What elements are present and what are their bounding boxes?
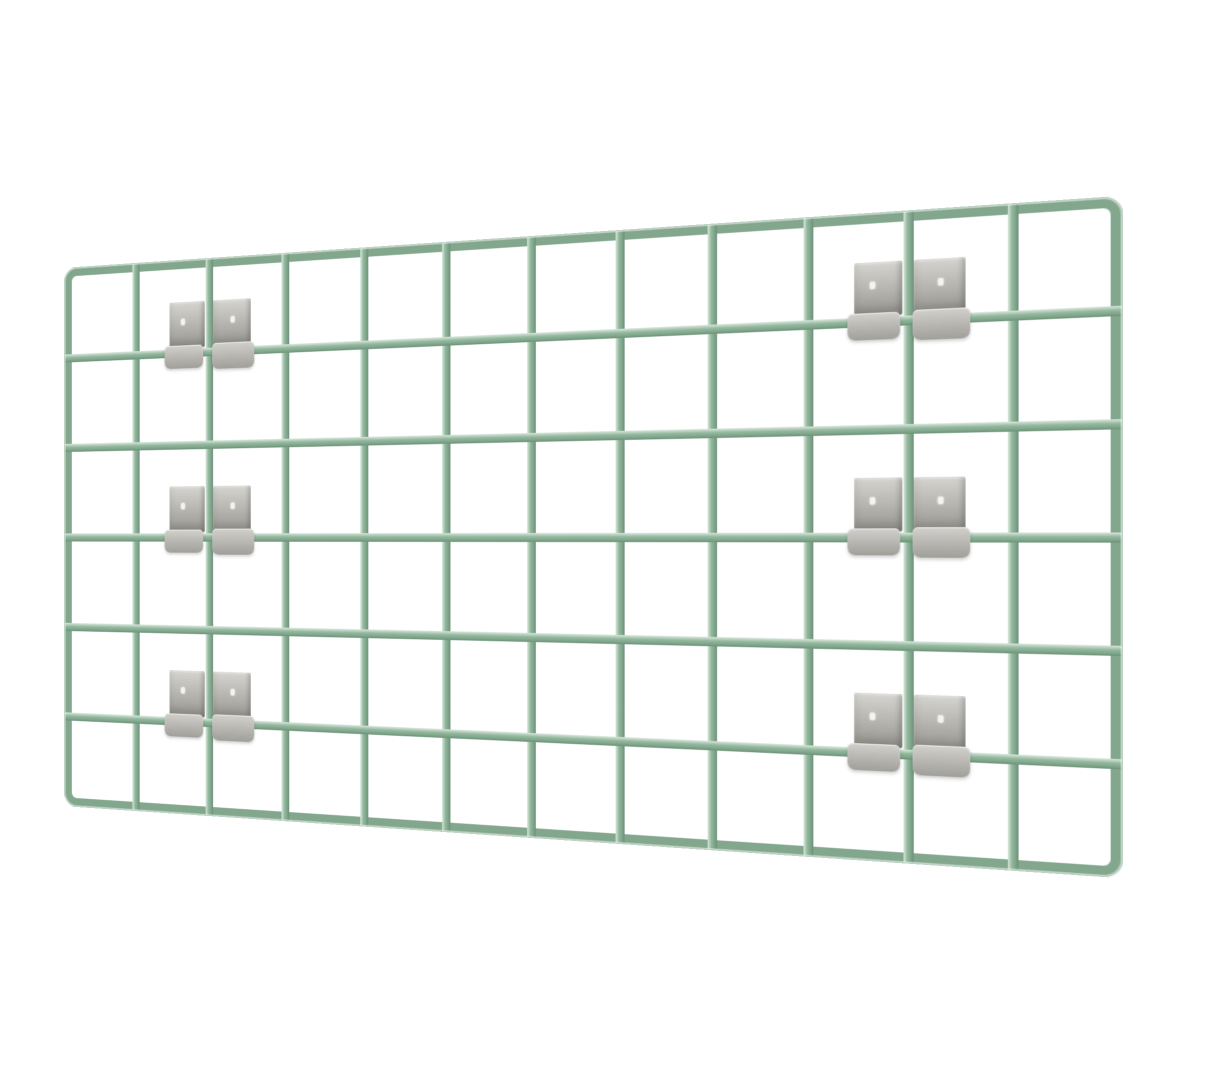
bracket-hook-right [212, 714, 254, 742]
bracket-screw-hole-left [870, 282, 876, 290]
mounting-bracket [164, 485, 255, 558]
bracket-screw-hole-right [938, 497, 944, 505]
mounting-bracket [846, 477, 971, 563]
bracket-plate-left [854, 693, 902, 749]
bracket-plate-left [169, 670, 204, 717]
bracket-screw-hole-left [181, 503, 185, 509]
bracket-screw-hole-right [938, 715, 944, 723]
bracket-screw-hole-left [181, 687, 185, 694]
bracket-plate-left [169, 486, 204, 532]
mounting-bracket [846, 257, 971, 348]
bracket-screw-hole-right [231, 316, 235, 323]
product-photo-stage [0, 0, 1214, 1090]
bracket-hook-right [212, 341, 254, 369]
bracket-plate-left [169, 301, 204, 349]
bracket-screw-hole-left [870, 713, 876, 721]
bracket-plate-left [854, 261, 902, 317]
bracket-hook-left [847, 528, 900, 555]
bracket-screw-hole-right [231, 689, 235, 696]
bracket-screw-hole-right [938, 278, 944, 286]
bracket-plate-right [213, 672, 251, 720]
bracket-plate-left [854, 477, 902, 531]
bracket-screw-hole-left [181, 319, 185, 326]
grid-panel [65, 197, 1122, 877]
bracket-screw-hole-left [870, 497, 876, 505]
bracket-hook-left [165, 530, 204, 553]
bracket-hook-left [165, 713, 204, 738]
bracket-hook-right [212, 529, 254, 555]
bracket-hook-left [847, 312, 900, 341]
mounting-bracket [846, 692, 971, 782]
bracket-hook-left [165, 344, 204, 369]
bracket-hook-right [913, 745, 971, 778]
mounting-bracket [164, 670, 255, 746]
bracket-hook-left [847, 743, 900, 772]
bracket-screw-hole-right [231, 502, 235, 509]
bracket-hook-right [913, 527, 971, 558]
mounting-bracket [164, 298, 255, 375]
bracket-plate-right [914, 695, 966, 752]
bracket-hook-right [913, 307, 971, 340]
